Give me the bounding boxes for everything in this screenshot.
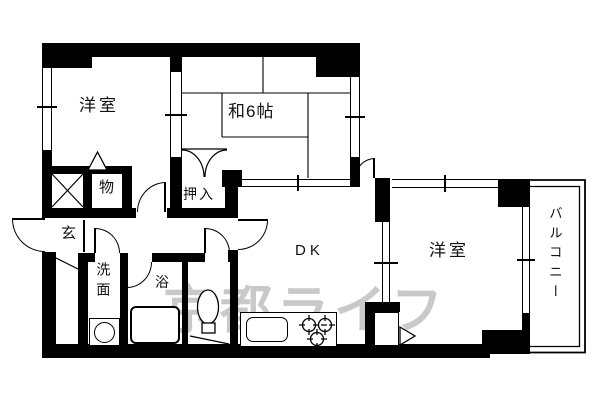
utility-door-triangle-icon [400,327,415,345]
room-label-entrance: 玄 [61,226,76,243]
closet-double-door-arcs [182,149,227,177]
detail-overlay [0,0,600,400]
entrance-diagonal-line [48,254,84,272]
stove-burners-icon [299,315,335,349]
room-label-western-left: 洋室 [79,97,119,116]
room-label-dk: DK [295,243,324,260]
room-label-bath: 浴 [155,275,169,290]
room-label-western-right: 洋室 [429,242,469,261]
pipe-shaft-x-icon [52,174,83,207]
room-label-washroom: 洗面 [95,262,110,302]
floorplan-canvas: 京都ライフ [0,0,600,400]
storage-door-triangle-icon [88,152,107,170]
toilet-icon [190,290,229,344]
room-label-storage: 物 [99,180,114,197]
room-label-japanese: 和6帖 [228,103,274,122]
room-label-balcony: バルコニー [546,206,561,304]
room-label-closet: 押入 [183,187,215,202]
